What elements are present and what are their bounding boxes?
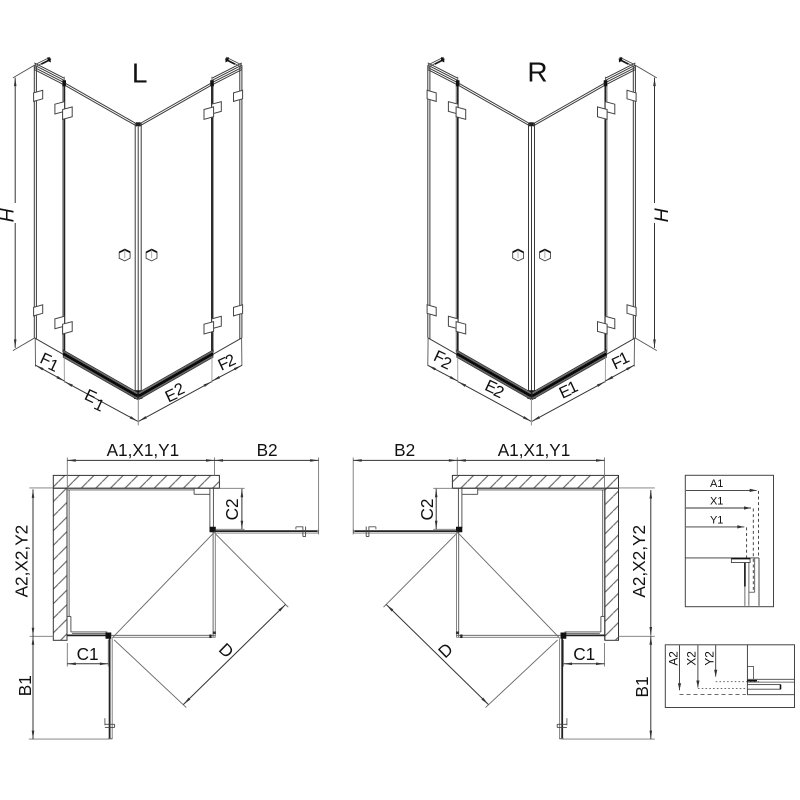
- svg-text:B2: B2: [394, 440, 415, 460]
- svg-text:X2: X2: [685, 651, 699, 665]
- svg-text:C1: C1: [77, 644, 99, 664]
- svg-text:X1: X1: [710, 496, 723, 508]
- svg-text:B2: B2: [257, 440, 278, 460]
- svg-text:Y2: Y2: [703, 651, 717, 665]
- svg-text:B1: B1: [632, 676, 652, 697]
- svg-text:A2,X2,Y2: A2,X2,Y2: [11, 525, 31, 598]
- svg-text:A2: A2: [666, 651, 680, 665]
- svg-text:Y1: Y1: [710, 515, 723, 527]
- svg-text:C1: C1: [573, 644, 595, 664]
- svg-text:A1,X1,Y1: A1,X1,Y1: [498, 440, 571, 460]
- svg-text:L: L: [132, 58, 148, 89]
- svg-text:H: H: [651, 207, 673, 222]
- svg-text:C2: C2: [417, 499, 437, 521]
- svg-text:B1: B1: [15, 675, 35, 696]
- svg-text:R: R: [527, 57, 547, 88]
- svg-text:A2,X2,Y2: A2,X2,Y2: [629, 525, 649, 598]
- svg-text:H: H: [0, 207, 19, 222]
- svg-text:C2: C2: [222, 498, 242, 520]
- svg-text:A1,X1,Y1: A1,X1,Y1: [107, 440, 180, 460]
- svg-text:A1: A1: [710, 478, 723, 490]
